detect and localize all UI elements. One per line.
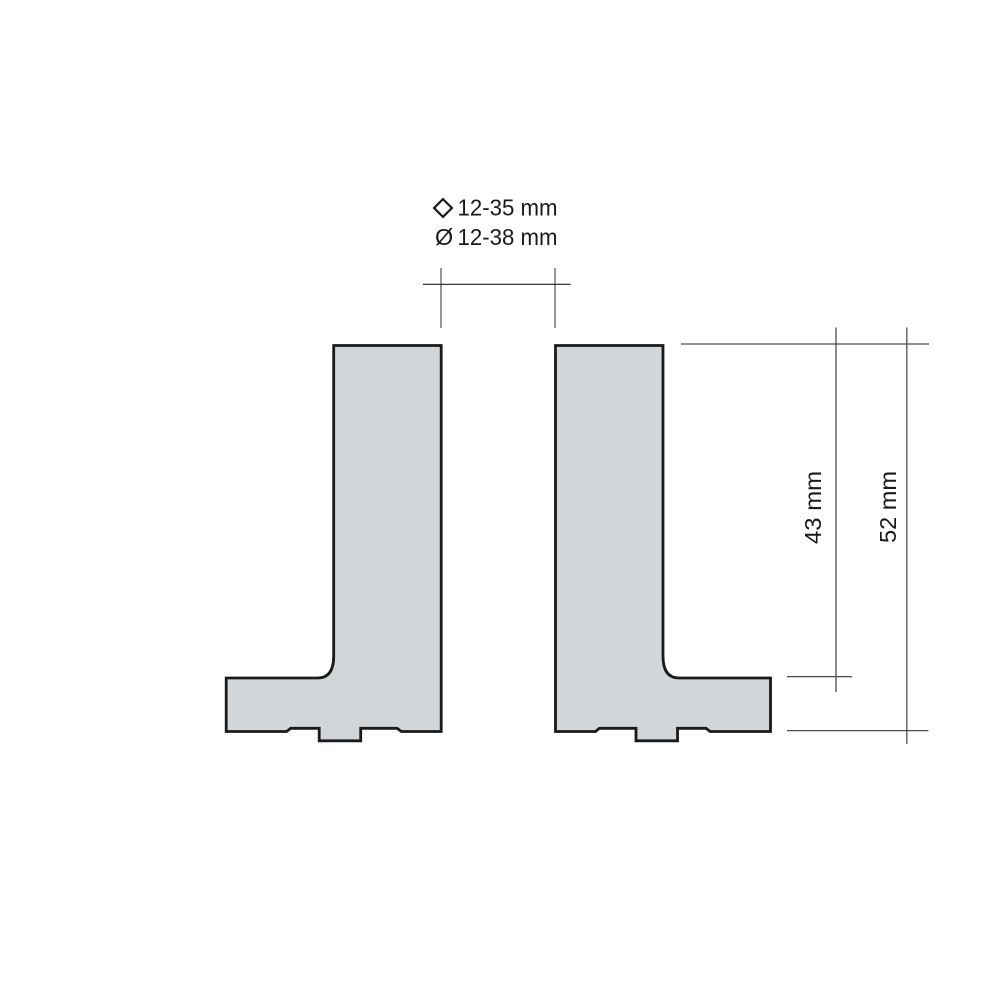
svg-text:Ø: Ø <box>435 224 453 250</box>
svg-text:12-35 mm: 12-35 mm <box>458 195 558 221</box>
svg-text:12-38 mm: 12-38 mm <box>458 224 558 250</box>
svg-text:43 mm: 43 mm <box>800 471 826 544</box>
svg-text:52 mm: 52 mm <box>875 471 901 543</box>
